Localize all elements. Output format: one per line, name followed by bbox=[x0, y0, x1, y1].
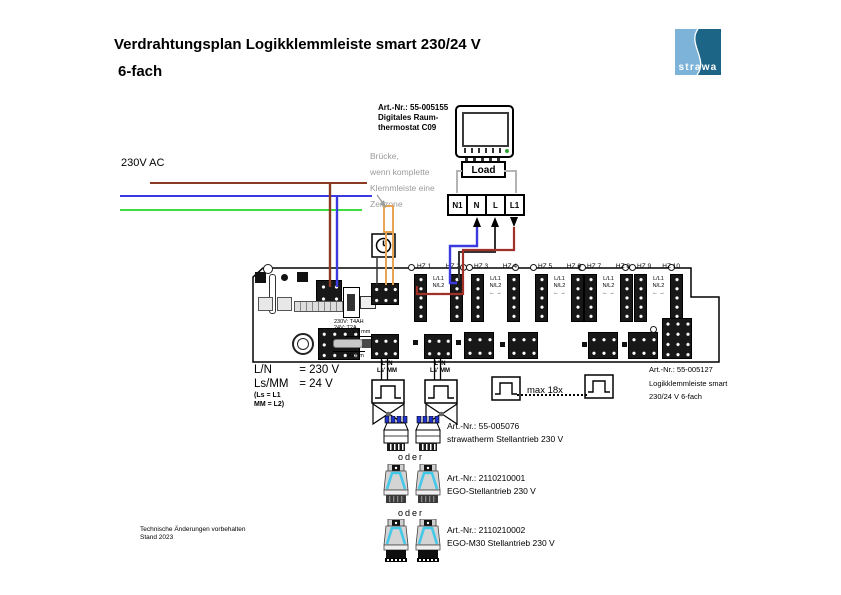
ego-m30-actuator-image bbox=[383, 519, 447, 563]
strawatherm-actuator bbox=[384, 416, 408, 451]
actuator-1-name: strawatherm Stellantrieb 230 V bbox=[447, 433, 563, 446]
ego-m30-actuator bbox=[416, 519, 440, 562]
actuator-3-name: EGO-M30 Stellantrieb 230 V bbox=[447, 537, 555, 550]
board-art-name: Logikklemmleiste smart bbox=[649, 377, 727, 391]
footer-line2: Stand 2023 bbox=[140, 534, 246, 542]
ego-m30-actuator bbox=[384, 519, 408, 562]
actuator-1-art: Art.-Nr.: 55-005076 bbox=[447, 420, 563, 433]
actuator-2-art: Art.-Nr.: 2110210001 bbox=[447, 472, 536, 485]
actuator-2-label: Art.-Nr.: 2110210001 EGO-Stellantrieb 23… bbox=[447, 472, 536, 498]
actuator-3-label: Art.-Nr.: 2110210002 EGO-M30 Stellantrie… bbox=[447, 524, 555, 550]
ego-actuator bbox=[384, 464, 408, 503]
ego-actuator bbox=[416, 464, 440, 503]
actuator-symbol-3 bbox=[492, 377, 520, 400]
strawatherm-actuator bbox=[416, 416, 440, 451]
actuator-2-name: EGO-Stellantrieb 230 V bbox=[447, 485, 536, 498]
board-art-label: Art.-Nr.: 55-005127 Logikklemmleiste sma… bbox=[649, 363, 727, 404]
actuator-1-label: Art.-Nr.: 55-005076 strawatherm Stellant… bbox=[447, 420, 563, 446]
max-count-label: max 18x bbox=[527, 385, 563, 396]
actuator-symbol-4 bbox=[585, 375, 613, 398]
wiring-diagram-page: Verdrahtungsplan Logikklemmleiste smart … bbox=[0, 0, 841, 595]
oder-separator-1: oder bbox=[398, 452, 424, 462]
footer-line1: Technische Änderungen vorbehalten bbox=[140, 526, 246, 534]
board-art-number: Art.-Nr.: 55-005127 bbox=[649, 363, 727, 377]
ego-actuator-image bbox=[383, 464, 447, 506]
board-art-variant: 230/24 V 6-fach bbox=[649, 390, 727, 404]
oder-separator-2: oder bbox=[398, 508, 424, 518]
actuator-3-art: Art.-Nr.: 2110210002 bbox=[447, 524, 555, 537]
footer-note: Technische Änderungen vorbehalten Stand … bbox=[140, 526, 246, 541]
strawatherm-actuator-image bbox=[383, 416, 447, 456]
